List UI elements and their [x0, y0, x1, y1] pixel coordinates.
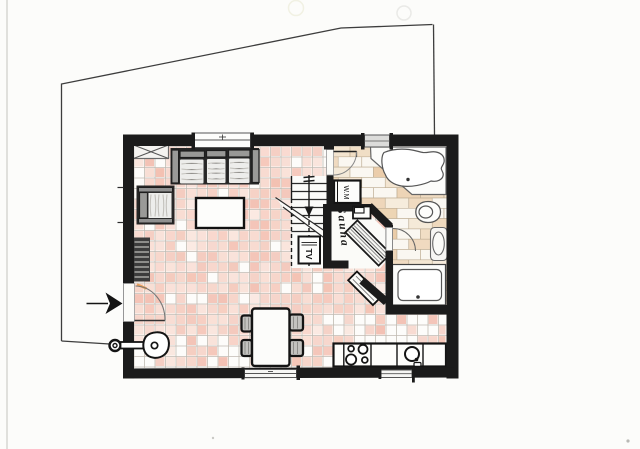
svg-text:TV: TV	[304, 249, 314, 260]
svg-text:W.M: W.M	[342, 186, 349, 200]
